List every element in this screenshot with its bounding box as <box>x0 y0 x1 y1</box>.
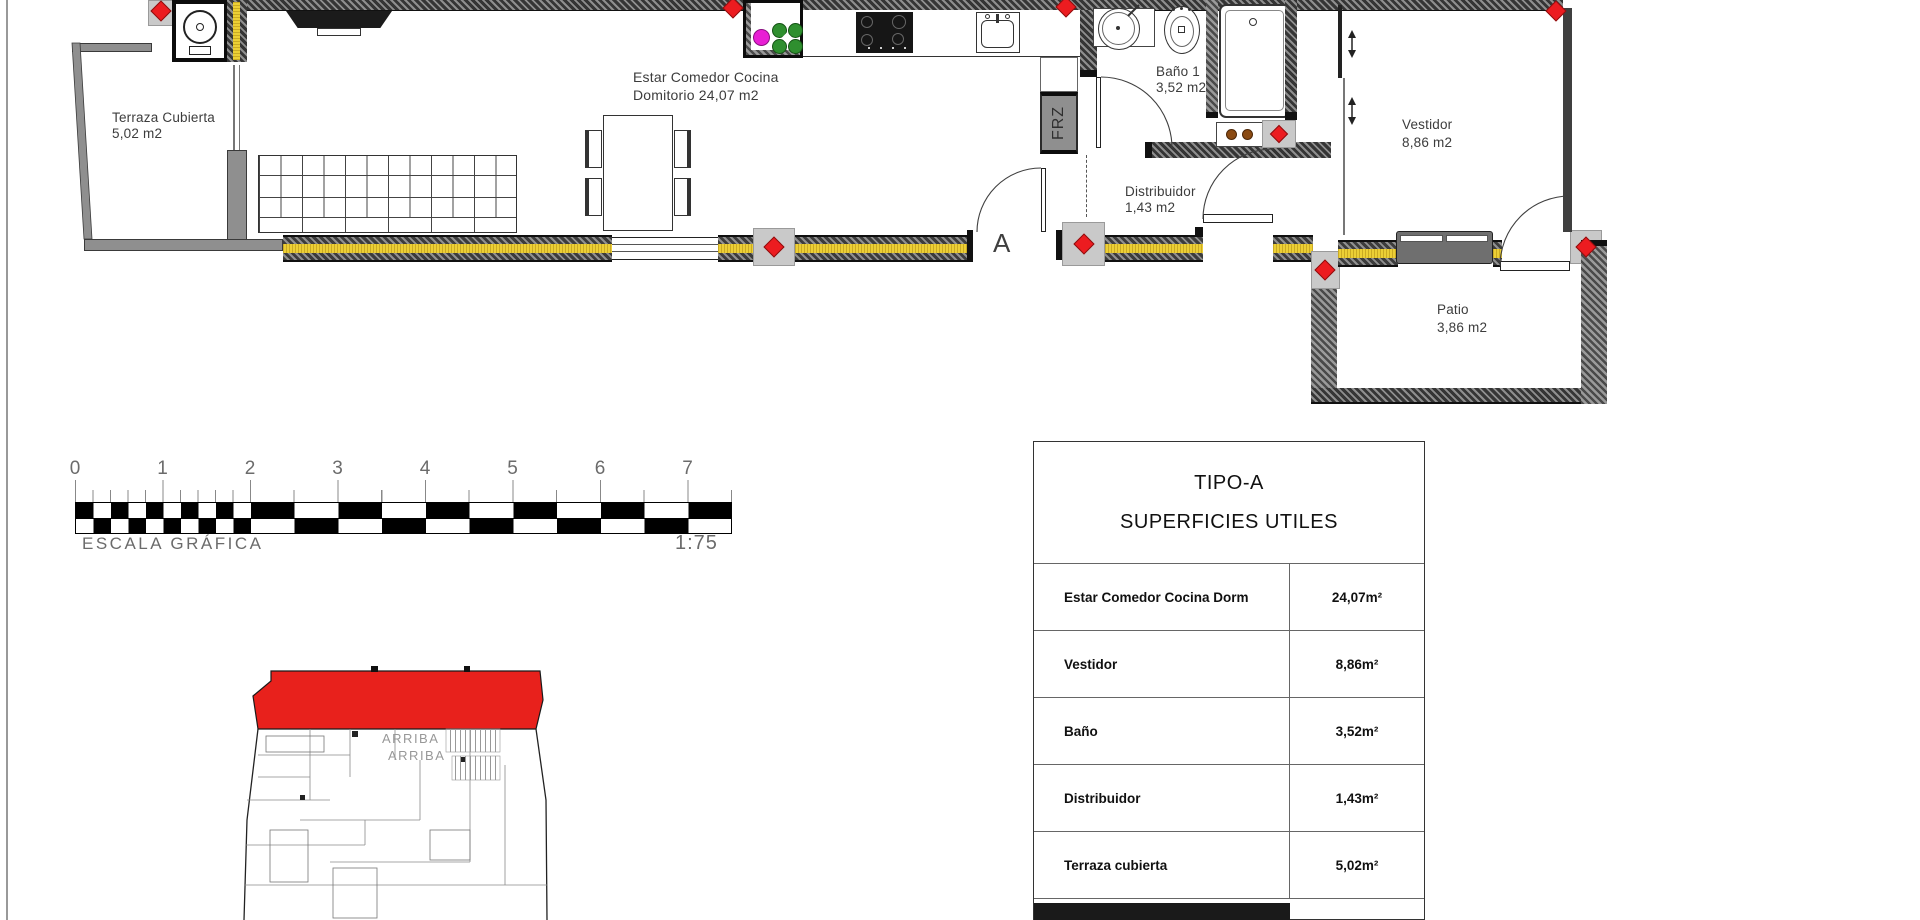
scale-number: 7 <box>673 458 703 480</box>
surface-table: TIPO-A SUPERFICIES UTILES Estar Comedor … <box>1033 441 1425 920</box>
room-label-patio: Patio3,86 m2 <box>1437 301 1487 337</box>
stairs-hatch <box>452 756 500 780</box>
scale-number: 0 <box>60 458 90 480</box>
scale-number: 2 <box>235 458 265 480</box>
scale-number: 3 <box>323 458 353 480</box>
sliding-arrow-icon <box>1348 30 1356 125</box>
scale-ticks-fine <box>75 490 251 502</box>
scale-number: 5 <box>498 458 528 480</box>
surface-table-header: TIPO-A SUPERFICIES UTILES <box>1034 442 1424 564</box>
highlighted-unit <box>253 671 543 729</box>
scale-ticks-half <box>250 490 732 502</box>
stairs-label: ARRIBA <box>382 731 439 746</box>
room-label-distribuidor: Distribuidor1,43 m2 <box>1125 184 1196 216</box>
floor-plan: FRZ <box>0 0 1920 420</box>
table-row: Estar Comedor Cocina Dorm 24,07m² <box>1034 564 1424 631</box>
room-label-vestidor: Vestidor8,86 m2 <box>1402 116 1452 152</box>
table-title: TIPO-A <box>1034 442 1424 495</box>
table-row: Distribuidor 1,43m² <box>1034 765 1424 832</box>
scale-ratio: 1:75 <box>675 532 718 555</box>
scale-number: 6 <box>585 458 615 480</box>
floor-plan-sheet: FRZ <box>0 0 1920 920</box>
room-label-estar: Estar Comedor CocinaDomitorio 24,07 m2 <box>633 68 779 104</box>
table-subtitle: SUPERFICIES UTILES <box>1034 495 1424 534</box>
graphic-scale: 0 1 2 3 4 5 6 7 ESCALA GRÁFICA 1:75 <box>75 458 775 558</box>
room-label-terraza: Terraza Cubierta5,02 m2 <box>112 110 215 142</box>
plan-linework <box>0 0 1920 420</box>
table-next-row-bar <box>1034 903 1290 920</box>
table-row: Baño 3,52m² <box>1034 698 1424 765</box>
table-row: Terraza cubierta 5,02m² <box>1034 832 1424 899</box>
stairs-label: ARRIBA <box>388 748 445 763</box>
table-row: Vestidor 8,86m² <box>1034 631 1424 698</box>
stairs-hatch <box>446 729 500 752</box>
scale-title: ESCALA GRÁFICA <box>82 534 263 554</box>
scale-number: 1 <box>148 458 178 480</box>
section-marker-a: A <box>993 228 1010 259</box>
room-label-bano: Baño 13,52 m2 <box>1156 64 1206 96</box>
scale-bar-blocks <box>75 502 732 534</box>
scale-number: 4 <box>410 458 440 480</box>
key-plan: ARRIBA ARRIBA <box>225 650 565 920</box>
